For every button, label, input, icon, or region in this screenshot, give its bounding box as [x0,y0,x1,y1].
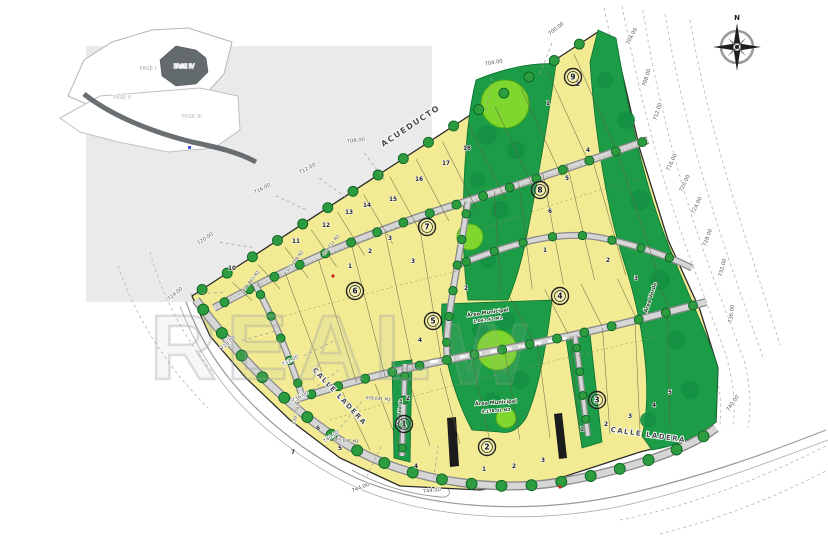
lot-number: 17 [442,161,450,167]
tree-icon [582,415,590,423]
tree-icon [579,392,587,400]
tree-icon [498,345,507,354]
lot-number: 2 [464,286,468,292]
contour-label: 712.00 [652,102,663,121]
tree-icon [466,478,477,489]
green-canopy [667,331,685,349]
tree-icon [574,39,584,49]
tree-icon [198,304,209,315]
tree-icon [524,72,534,82]
lot-number: 5 [668,390,672,396]
tree-icon [236,350,247,361]
lot-number: 12 [322,223,330,229]
tree-icon [257,372,268,383]
lot-number: 2 [604,422,608,428]
tree-icon [611,147,620,156]
green-canopy [617,111,635,129]
tree-icon [643,455,654,466]
tree-icon [279,392,290,403]
tree-icon [505,183,514,192]
tree-icon [462,257,470,265]
survey-mark [558,485,561,488]
tree-icon [425,209,434,218]
contour-label: 728.00 [702,228,714,247]
tree-icon [294,379,302,387]
tree-icon [452,200,461,209]
lot-number: 4 [418,338,422,344]
lot-number: 4 [586,148,590,154]
tree-icon [348,186,358,196]
tree-icon [553,334,562,343]
tree-icon [698,431,709,442]
contour-label: 708.00 [641,68,652,87]
survey-mark [331,274,334,277]
block-marker: 7 [424,223,429,232]
inset-label: FASE IV [174,64,195,70]
lot-number: 2 [406,396,410,402]
tree-icon [548,233,556,241]
tree-icon [398,444,406,452]
lot-number: 3 [411,259,415,265]
tree-icon [453,261,461,269]
tree-icon [661,308,670,317]
tree-icon [398,154,408,164]
site-plan-photo: 700.00704.00704.00708.00712.00716.00720.… [0,0,828,552]
tree-icon [277,334,285,342]
tree-icon [474,105,484,115]
tree-icon [247,252,257,262]
tree-icon [614,463,625,474]
lot-number: 15 [389,197,397,203]
tree-icon [443,338,451,346]
tree-icon [499,88,509,98]
lot-number: 11 [292,239,300,245]
lot-number: 1 [546,101,550,107]
green-canopy [477,125,497,145]
lot-number: 13 [345,210,353,216]
tree-icon [373,228,382,237]
lot-number: 3 [628,414,632,420]
lot-number: 7 [291,450,295,456]
green-canopy [470,172,486,188]
block-marker: 2 [484,443,489,452]
lot-number: 6 [316,426,320,432]
tree-icon [578,231,586,239]
lot-number: 16 [415,177,423,183]
tree-icon [634,315,643,324]
green-canopy [630,190,650,210]
lot-number: 1 [482,467,486,473]
playground-blob [481,80,529,128]
tree-icon [496,480,507,491]
lot-number: 4 [414,464,418,470]
lot-number: 10 [228,266,236,272]
lot-number: 2 [368,249,372,255]
block-marker: 5 [430,317,435,326]
tree-icon [347,238,356,247]
block-marker: 9 [570,73,575,82]
contour-label: 704.00 [625,27,639,46]
lot-number: 4 [652,403,656,409]
green-canopy [640,412,656,428]
compass-north-label: N [734,14,740,22]
green-canopy [597,72,613,88]
tree-icon [665,254,673,262]
lot-number: 3 [388,236,392,242]
compass-center [735,45,739,49]
lot-number: 3 [634,276,638,282]
tree-icon [273,235,283,245]
contour-line [690,20,780,345]
tree-icon [443,355,452,364]
green-canopy [491,201,509,219]
tree-icon [267,312,275,320]
tree-icon [302,412,313,423]
lot-number: 5 [338,446,342,452]
tree-icon [361,374,370,383]
contour-label: 716.00 [666,153,679,172]
tree-icon [479,192,488,201]
tree-icon [558,165,567,174]
lot-number: 2 [606,258,610,264]
tree-icon [671,444,682,455]
tree-icon [298,219,308,229]
tree-icon [399,218,408,227]
lot-number: 3 [541,458,545,464]
tree-icon [585,471,596,482]
inset-label: FASE I [140,66,157,72]
tree-icon [449,287,457,295]
lot-number: 5 [565,176,569,182]
lot-number: 2 [512,464,516,470]
contour-label: 740.00 [726,394,741,412]
tree-icon [256,290,264,298]
lot-number: 18 [463,146,471,152]
tree-icon [445,312,453,320]
tree-icon [573,344,581,352]
tree-icon [525,340,534,349]
lot-number: 1 [580,427,584,433]
green-canopy [681,381,699,399]
block-marker: 4 [557,292,562,301]
compass-rose: N [713,14,761,71]
lot-number: 6 [548,209,552,215]
block-marker: 8 [537,186,542,195]
tree-icon [352,445,363,456]
tree-icon [436,474,447,485]
tree-icon [401,372,409,380]
tree-icon [458,235,466,243]
contour-label: 744.00 [423,487,442,495]
tree-icon [585,156,594,165]
tree-icon [689,301,698,310]
tree-icon [470,350,479,359]
contour-label: 724.00 [691,196,704,215]
site-plan-svg: 700.00704.00704.00708.00712.00716.00720.… [0,0,828,552]
tree-icon [462,210,470,218]
lot-number: 1 [348,264,352,270]
tree-icon [576,368,584,376]
lot-number: 14 [363,203,371,209]
block-marker: 1 [401,420,406,429]
tree-icon [220,298,229,307]
block-marker: 3 [594,396,599,405]
green-canopy [507,141,525,159]
tree-icon [197,285,207,295]
tree-icon [608,236,616,244]
tree-icon [423,137,433,147]
tree-icon [379,458,390,469]
inset-label: FASE II [113,95,132,101]
tree-icon [519,239,527,247]
tree-icon [216,328,227,339]
inset-label: FASE III [182,114,202,120]
contour-label: 720.00 [679,174,692,193]
contour-label: 732.00 [718,258,728,277]
green-canopy [511,371,529,389]
block-marker: 6 [352,287,357,296]
tree-icon [323,203,333,213]
tree-icon [270,272,279,281]
tree-icon [415,361,424,370]
tree-icon [549,56,559,66]
tree-icon [449,121,459,131]
tree-icon [526,480,537,491]
tree-icon [637,244,645,252]
contour-label: 736.00 [728,304,736,323]
contour-label: 704.00 [484,58,503,67]
tree-icon [556,476,567,487]
contour-line [660,470,828,534]
lot-number: 1 [543,248,547,254]
contour-label: 700.00 [547,21,565,37]
tree-icon [373,170,383,180]
inset-blue-marker [188,146,191,149]
tree-icon [638,138,647,147]
tree-icon [490,247,498,255]
tree-icon [580,328,589,337]
tree-icon [607,322,616,331]
tree-icon [388,367,397,376]
